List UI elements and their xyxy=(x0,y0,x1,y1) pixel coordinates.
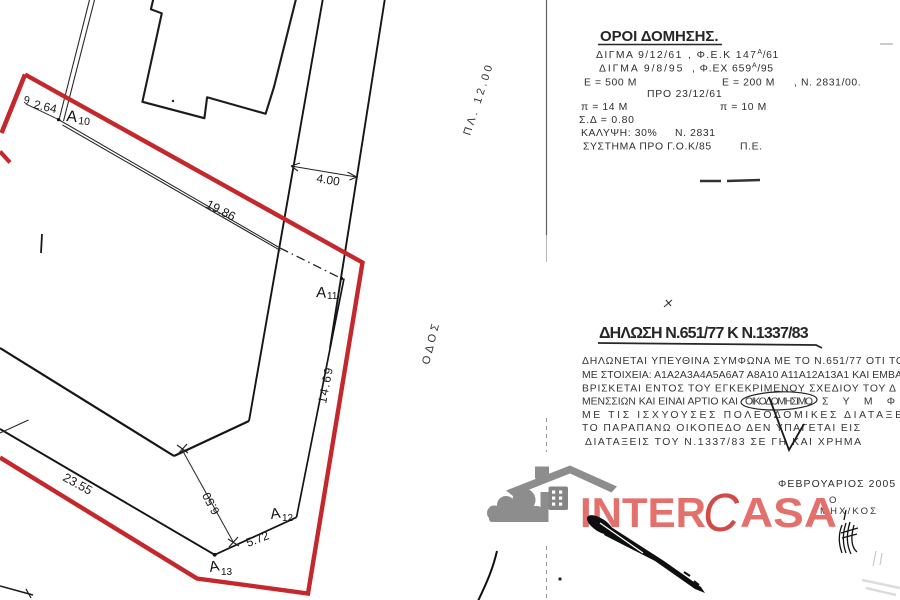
svg-text:13: 13 xyxy=(221,567,233,578)
svg-text:ASA: ASA xyxy=(740,489,837,536)
svg-text:10: 10 xyxy=(78,115,91,128)
svg-text:ΚΑΛΥΨΗ: 30% Ν. 2831: ΚΑΛΥΨΗ: 30% Ν. 2831 xyxy=(581,128,716,139)
svg-text:ΔΙΓΜΑ 9/12/61 , Φ.Ε.Κ 14: ΔΙΓΜΑ 9/12/61 , Φ.Ε.Κ 147Α/61 xyxy=(596,49,779,61)
svg-text:A: A xyxy=(66,108,79,126)
svg-text:ΠΡΟ 23/12/61: ΠΡΟ 23/12/61 xyxy=(647,89,722,100)
svg-text:Σ.Δ = 0.80: Σ.Δ = 0.80 xyxy=(579,115,635,126)
svg-text:ΟΡΟΙ ΔΟΜΗΣΗΣ.: ΟΡΟΙ ΔΟΜΗΣΗΣ. xyxy=(600,28,720,45)
svg-text:ΒΡΙΣΚΕΤΑΙ ΕΝΤΟΣ ΤΟΥ ΕΓΚΕΚΡΙ: ΒΡΙΣΚΕΤΑΙ ΕΝΤΟΣ ΤΟΥ ΕΓΚΕΚΡΙΜΕΝΟΥ ΣΧΕΔΙΟΥ… xyxy=(582,384,896,395)
svg-text:A: A xyxy=(316,284,327,302)
svg-text:ΤΟ ΠΑΡΑΠΑΝΩ ΟΙΚΟΠΕΔΟ ΔΕΝ Υ: ΤΟ ΠΑΡΑΠΑΝΩ ΟΙΚΟΠΕΔΟ ΔΕΝ ΥΠΑΓΕΤΑΙ ΕΙΣ xyxy=(582,423,861,434)
svg-text:ΔΗΛΩΝΕΤΑΙ ΥΠΕΥΘΙΝΑ ΣΥΜΦΩΝΑ: ΔΗΛΩΝΕΤΑΙ ΥΠΕΥΘΙΝΑ ΣΥΜΦΩΝΑ ΜΕ ΤΟ Ν.651/7… xyxy=(582,356,900,367)
svg-text:11: 11 xyxy=(327,291,338,302)
svg-text:ΔΙΓΜΑ 9/8/95 , Φ.ΕΧ 659Α: ΔΙΓΜΑ 9/8/95 , Φ.ΕΧ 659Α/95 xyxy=(599,63,774,75)
svg-text:ΔΙΑΤΑΞΕΙΣ ΤΟΥ Ν.1337/83 ΣΕ: ΔΙΑΤΑΞΕΙΣ ΤΟΥ Ν.1337/83 ΣΕ ΓΗ ΚΑΙ ΧΡΗΜΑ xyxy=(585,437,861,448)
svg-text:C: C xyxy=(703,483,740,543)
svg-text:12: 12 xyxy=(282,513,294,524)
svg-text:Ε = 500 Μ Ε = 200 Μ ,: Ε = 500 Μ Ε = 200 Μ , Ν. 2831/00. xyxy=(584,78,861,89)
svg-text:ΜΕ ΣΤΟΙΧΕΙΑ: Α1Α2Α3Α4Α5Α6Α7 Α8: ΜΕ ΣΤΟΙΧΕΙΑ: Α1Α2Α3Α4Α5Α6Α7 Α8Α10 Α11Α12… xyxy=(582,370,900,381)
svg-text:ΔΗΛΩΣΗ Ν.651/77 Κ Ν.1337/83: ΔΗΛΩΣΗ Ν.651/77 Κ Ν.1337/83 xyxy=(599,325,809,342)
